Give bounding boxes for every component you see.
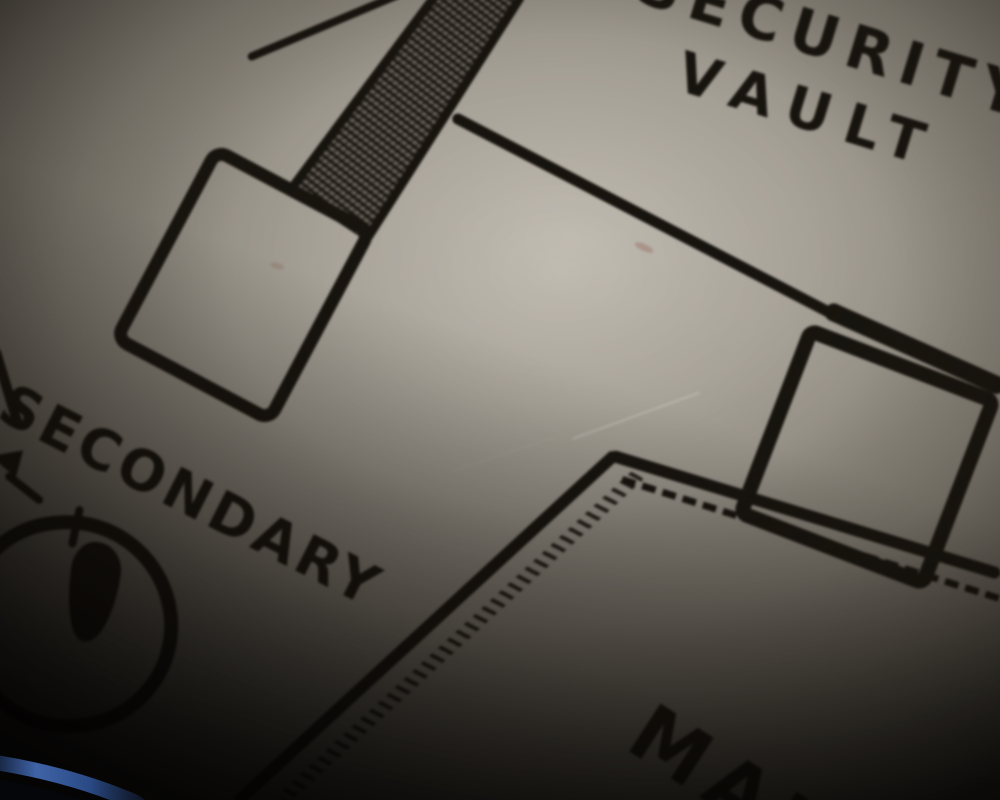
- paper-scratch-faint: [452, 436, 557, 472]
- map-drawing-layer: SECURITY VAULT SECONDARY MAIN: [0, 0, 1000, 800]
- photo-of-map: SECURITY VAULT SECONDARY MAIN: [0, 0, 1000, 800]
- flag-stem: [4, 471, 45, 506]
- paper-scratch: [572, 392, 700, 440]
- main-room-left-inner-hatch-wall: [277, 469, 643, 800]
- map-edge-blue-arc: [0, 748, 320, 800]
- flag-icon: [0, 443, 23, 478]
- upper-cross-wall: [246, 0, 401, 62]
- vault-left-wall: [450, 112, 844, 324]
- paper-smudge: [633, 240, 654, 255]
- main-label: MAIN: [613, 688, 897, 800]
